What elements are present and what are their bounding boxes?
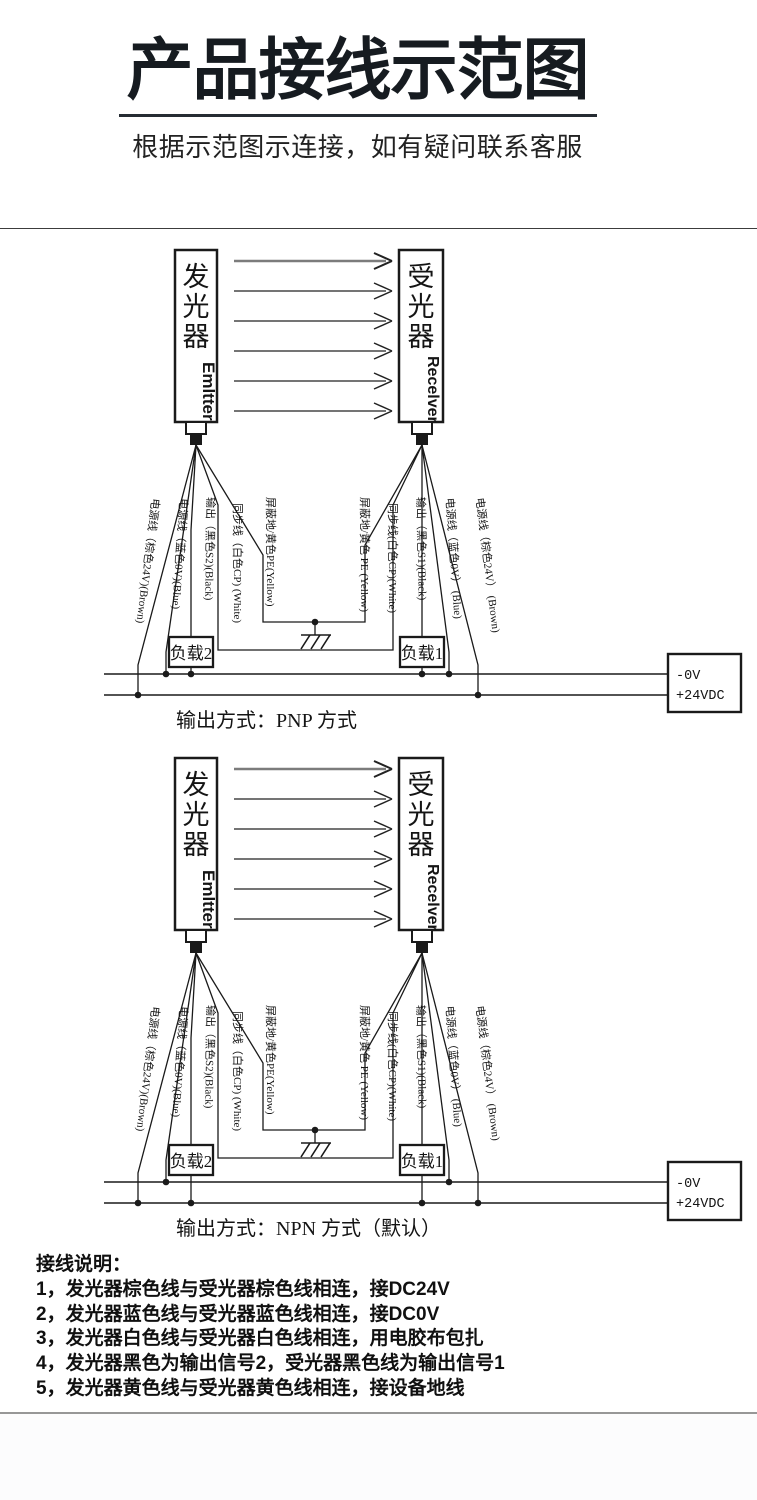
output-mode-caption: 输出方式：NPN 方式（默认） bbox=[176, 1217, 441, 1240]
receiver-wire-label: 电源线（棕色24V） (Brown) bbox=[473, 1005, 504, 1142]
emitter-label-cn-char: 光 bbox=[183, 292, 210, 322]
receiver-wire-label: 同步线(白色CP)(White) bbox=[386, 1011, 400, 1121]
cable-connector-stub bbox=[190, 942, 202, 953]
emitter-label-cn-char: 发 bbox=[183, 262, 210, 292]
load2-label: 负载2 bbox=[170, 644, 213, 663]
receiver-wire-label: 屏蔽地/黄色 PE (Yellow) bbox=[358, 497, 372, 612]
cable-connector bbox=[412, 930, 432, 942]
note-line-5: 5，发光器黄色线与受光器黄色线相连，接设备地线 bbox=[36, 1377, 505, 1402]
receiver-wire-label: 同步线(白色CP)(White) bbox=[386, 503, 400, 613]
emitter-wire-label: 同步线（白色CP) (White) bbox=[231, 1011, 245, 1131]
receiver-wire-label: 屏蔽地/黄色 PE (Yellow) bbox=[358, 1005, 372, 1120]
emitter-label-en: Emltter bbox=[199, 362, 218, 421]
receiver-label-cn-char: 光 bbox=[408, 800, 435, 830]
receiver-label-cn-char: 受 bbox=[408, 262, 435, 292]
cable-connector-stub bbox=[416, 434, 428, 445]
note-line-1: 1，发光器棕色线与受光器棕色线相连，接DC24V bbox=[36, 1278, 505, 1303]
note-line-3: 3，发光器白色线与受光器白色线相连，用电胶布包扎 bbox=[36, 1327, 505, 1352]
receiver-label-en: Recelver bbox=[424, 356, 441, 423]
power-label-0v: -0V bbox=[676, 1177, 701, 1192]
emitter-wire-label: 电源线（蓝色0V)(Blue) bbox=[169, 1006, 191, 1118]
cable-connector bbox=[186, 422, 206, 434]
power-label-0v: -0V bbox=[676, 669, 701, 684]
cable-connector bbox=[186, 930, 206, 942]
emitter-label-cn-char: 光 bbox=[183, 800, 210, 830]
ground-symbol-hatch bbox=[301, 635, 330, 649]
output-mode-caption: 输出方式：PNP 方式 bbox=[176, 709, 357, 732]
cable-connector bbox=[412, 422, 432, 434]
receiver-label-cn-char: 光 bbox=[408, 292, 435, 322]
load1-label: 负载1 bbox=[401, 1152, 444, 1171]
power-label-24v: +24VDC bbox=[676, 1197, 725, 1212]
section-divider-bottom bbox=[0, 1412, 757, 1500]
receiver-wire-label: 电源线（蓝色0V） (Blue) bbox=[443, 1005, 465, 1127]
cable-connector-stub bbox=[416, 942, 428, 953]
emitter-wire-label: 电源线（蓝色0V)(Blue) bbox=[169, 498, 191, 610]
wiring-notes: 接线说明： 1，发光器棕色线与受光器棕色线相连，接DC24V 2，发光器蓝色线与… bbox=[36, 1253, 505, 1402]
emitter-wire-label: 屏蔽地/黄色PE(Yellow) bbox=[264, 497, 278, 607]
note-line-2: 2，发光器蓝色线与受光器蓝色线相连，接DC0V bbox=[36, 1303, 505, 1328]
receiver-wire-label: 输出（黑色S1)(Black) bbox=[414, 497, 430, 601]
emitter-wire-label: 输出（黑色S2)(Black) bbox=[202, 1005, 218, 1109]
receiver-label-cn-char: 器 bbox=[408, 830, 435, 860]
note-line-4: 4，发光器黑色为输出信号2，受光器黑色线为输出信号1 bbox=[36, 1352, 505, 1377]
receiver-label-cn-char: 器 bbox=[408, 322, 435, 352]
receiver-label-cn-char: 受 bbox=[408, 770, 435, 800]
emitter-wire-label: 屏蔽地/黄色PE(Yellow) bbox=[264, 1005, 278, 1115]
ground-symbol-hatch bbox=[301, 1143, 330, 1157]
receiver-wire-label: 输出（黑色S1)(Black) bbox=[414, 1005, 430, 1109]
emitter-wire-label: 输出（黑色S2)(Black) bbox=[202, 497, 218, 601]
emitter-wire-label: 电源线（棕色24V)(Brown) bbox=[134, 498, 163, 625]
emitter-label-en: Emltter bbox=[199, 870, 218, 929]
power-label-24v: +24VDC bbox=[676, 689, 725, 704]
emitter-label-cn-char: 器 bbox=[183, 830, 210, 860]
emitter-label-cn-char: 发 bbox=[183, 770, 210, 800]
emitter-wire-label: 同步线（白色CP) (White) bbox=[231, 503, 245, 623]
emitter-label-cn-char: 器 bbox=[183, 322, 210, 352]
receiver-label-en: Recelver bbox=[424, 864, 441, 931]
receiver-wire-label: 电源线（棕色24V） (Brown) bbox=[473, 497, 504, 634]
notes-heading: 接线说明： bbox=[36, 1253, 505, 1278]
load1-label: 负载1 bbox=[401, 644, 444, 663]
cable-connector-stub bbox=[190, 434, 202, 445]
load2-label: 负载2 bbox=[170, 1152, 213, 1171]
emitter-wire-label: 电源线（棕色24V)(Brown) bbox=[134, 1006, 163, 1133]
receiver-wire-label: 电源线（蓝色0V） (Blue) bbox=[443, 497, 465, 619]
page: 产品接线示范图 根据示范图示连接，如有疑问联系客服 发光器Emltter受光器R… bbox=[0, 0, 757, 1500]
